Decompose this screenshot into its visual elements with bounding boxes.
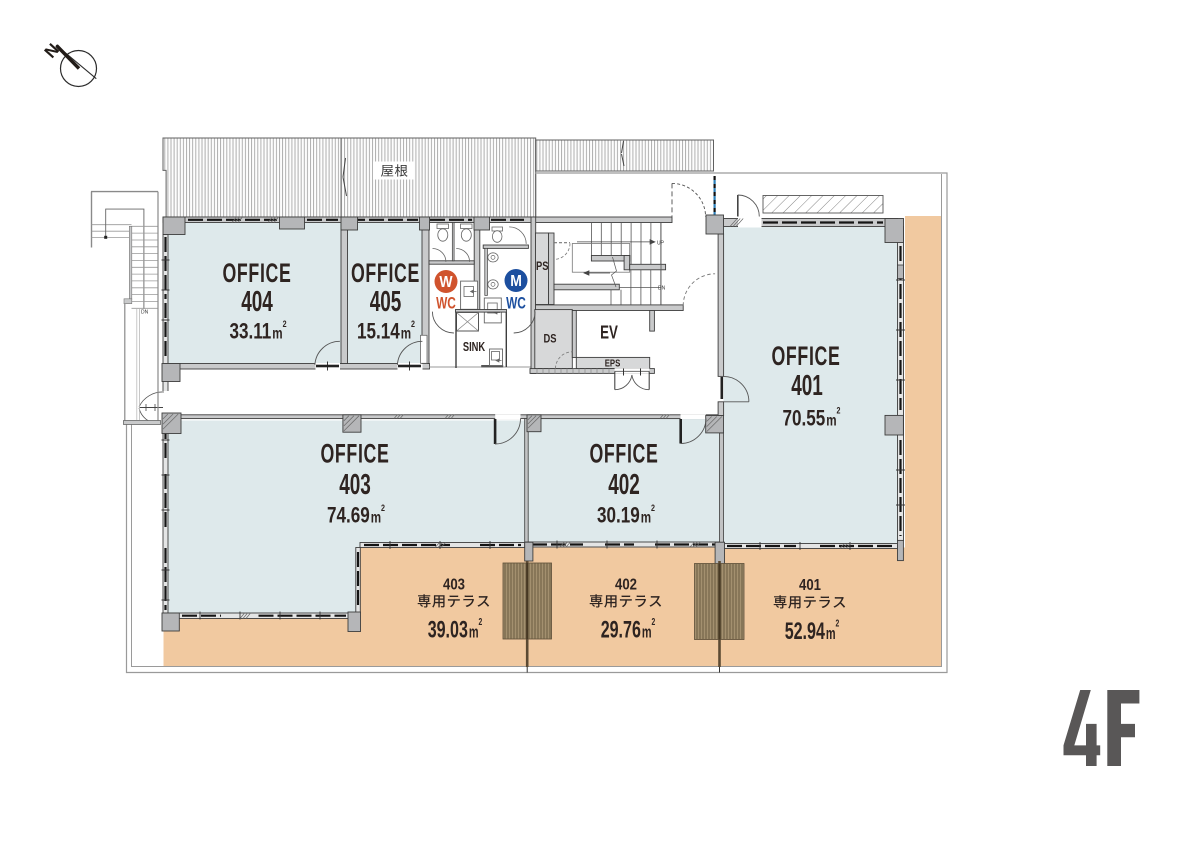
svg-text:UP: UP <box>657 241 665 247</box>
svg-text:EV: EV <box>600 322 618 343</box>
svg-text:401: 401 <box>799 577 821 594</box>
svg-text:N: N <box>41 40 63 62</box>
svg-text:PS: PS <box>536 260 548 273</box>
svg-text:SINK: SINK <box>463 341 486 355</box>
svg-text:M: M <box>510 273 522 290</box>
svg-text:WC: WC <box>506 295 526 313</box>
svg-text:OFFICE: OFFICE <box>222 259 291 288</box>
svg-text:OFFICE: OFFICE <box>771 342 840 371</box>
svg-text:DS: DS <box>544 332 557 345</box>
svg-text:W: W <box>439 274 452 291</box>
svg-text:403: 403 <box>443 577 465 594</box>
svg-text:WC: WC <box>436 295 456 313</box>
svg-text:405: 405 <box>370 286 402 318</box>
svg-text:OFFICE: OFFICE <box>320 439 389 468</box>
svg-text:OFFICE: OFFICE <box>589 439 658 468</box>
svg-text:EPS: EPS <box>605 357 621 368</box>
svg-text:402: 402 <box>615 577 637 594</box>
svg-text:402: 402 <box>608 469 640 501</box>
svg-text:404: 404 <box>241 286 273 318</box>
svg-text:OFFICE: OFFICE <box>351 259 420 288</box>
svg-text:DN: DN <box>141 310 149 316</box>
svg-text:DN: DN <box>658 286 666 292</box>
svg-text:401: 401 <box>791 370 823 402</box>
svg-text:403: 403 <box>339 469 371 501</box>
